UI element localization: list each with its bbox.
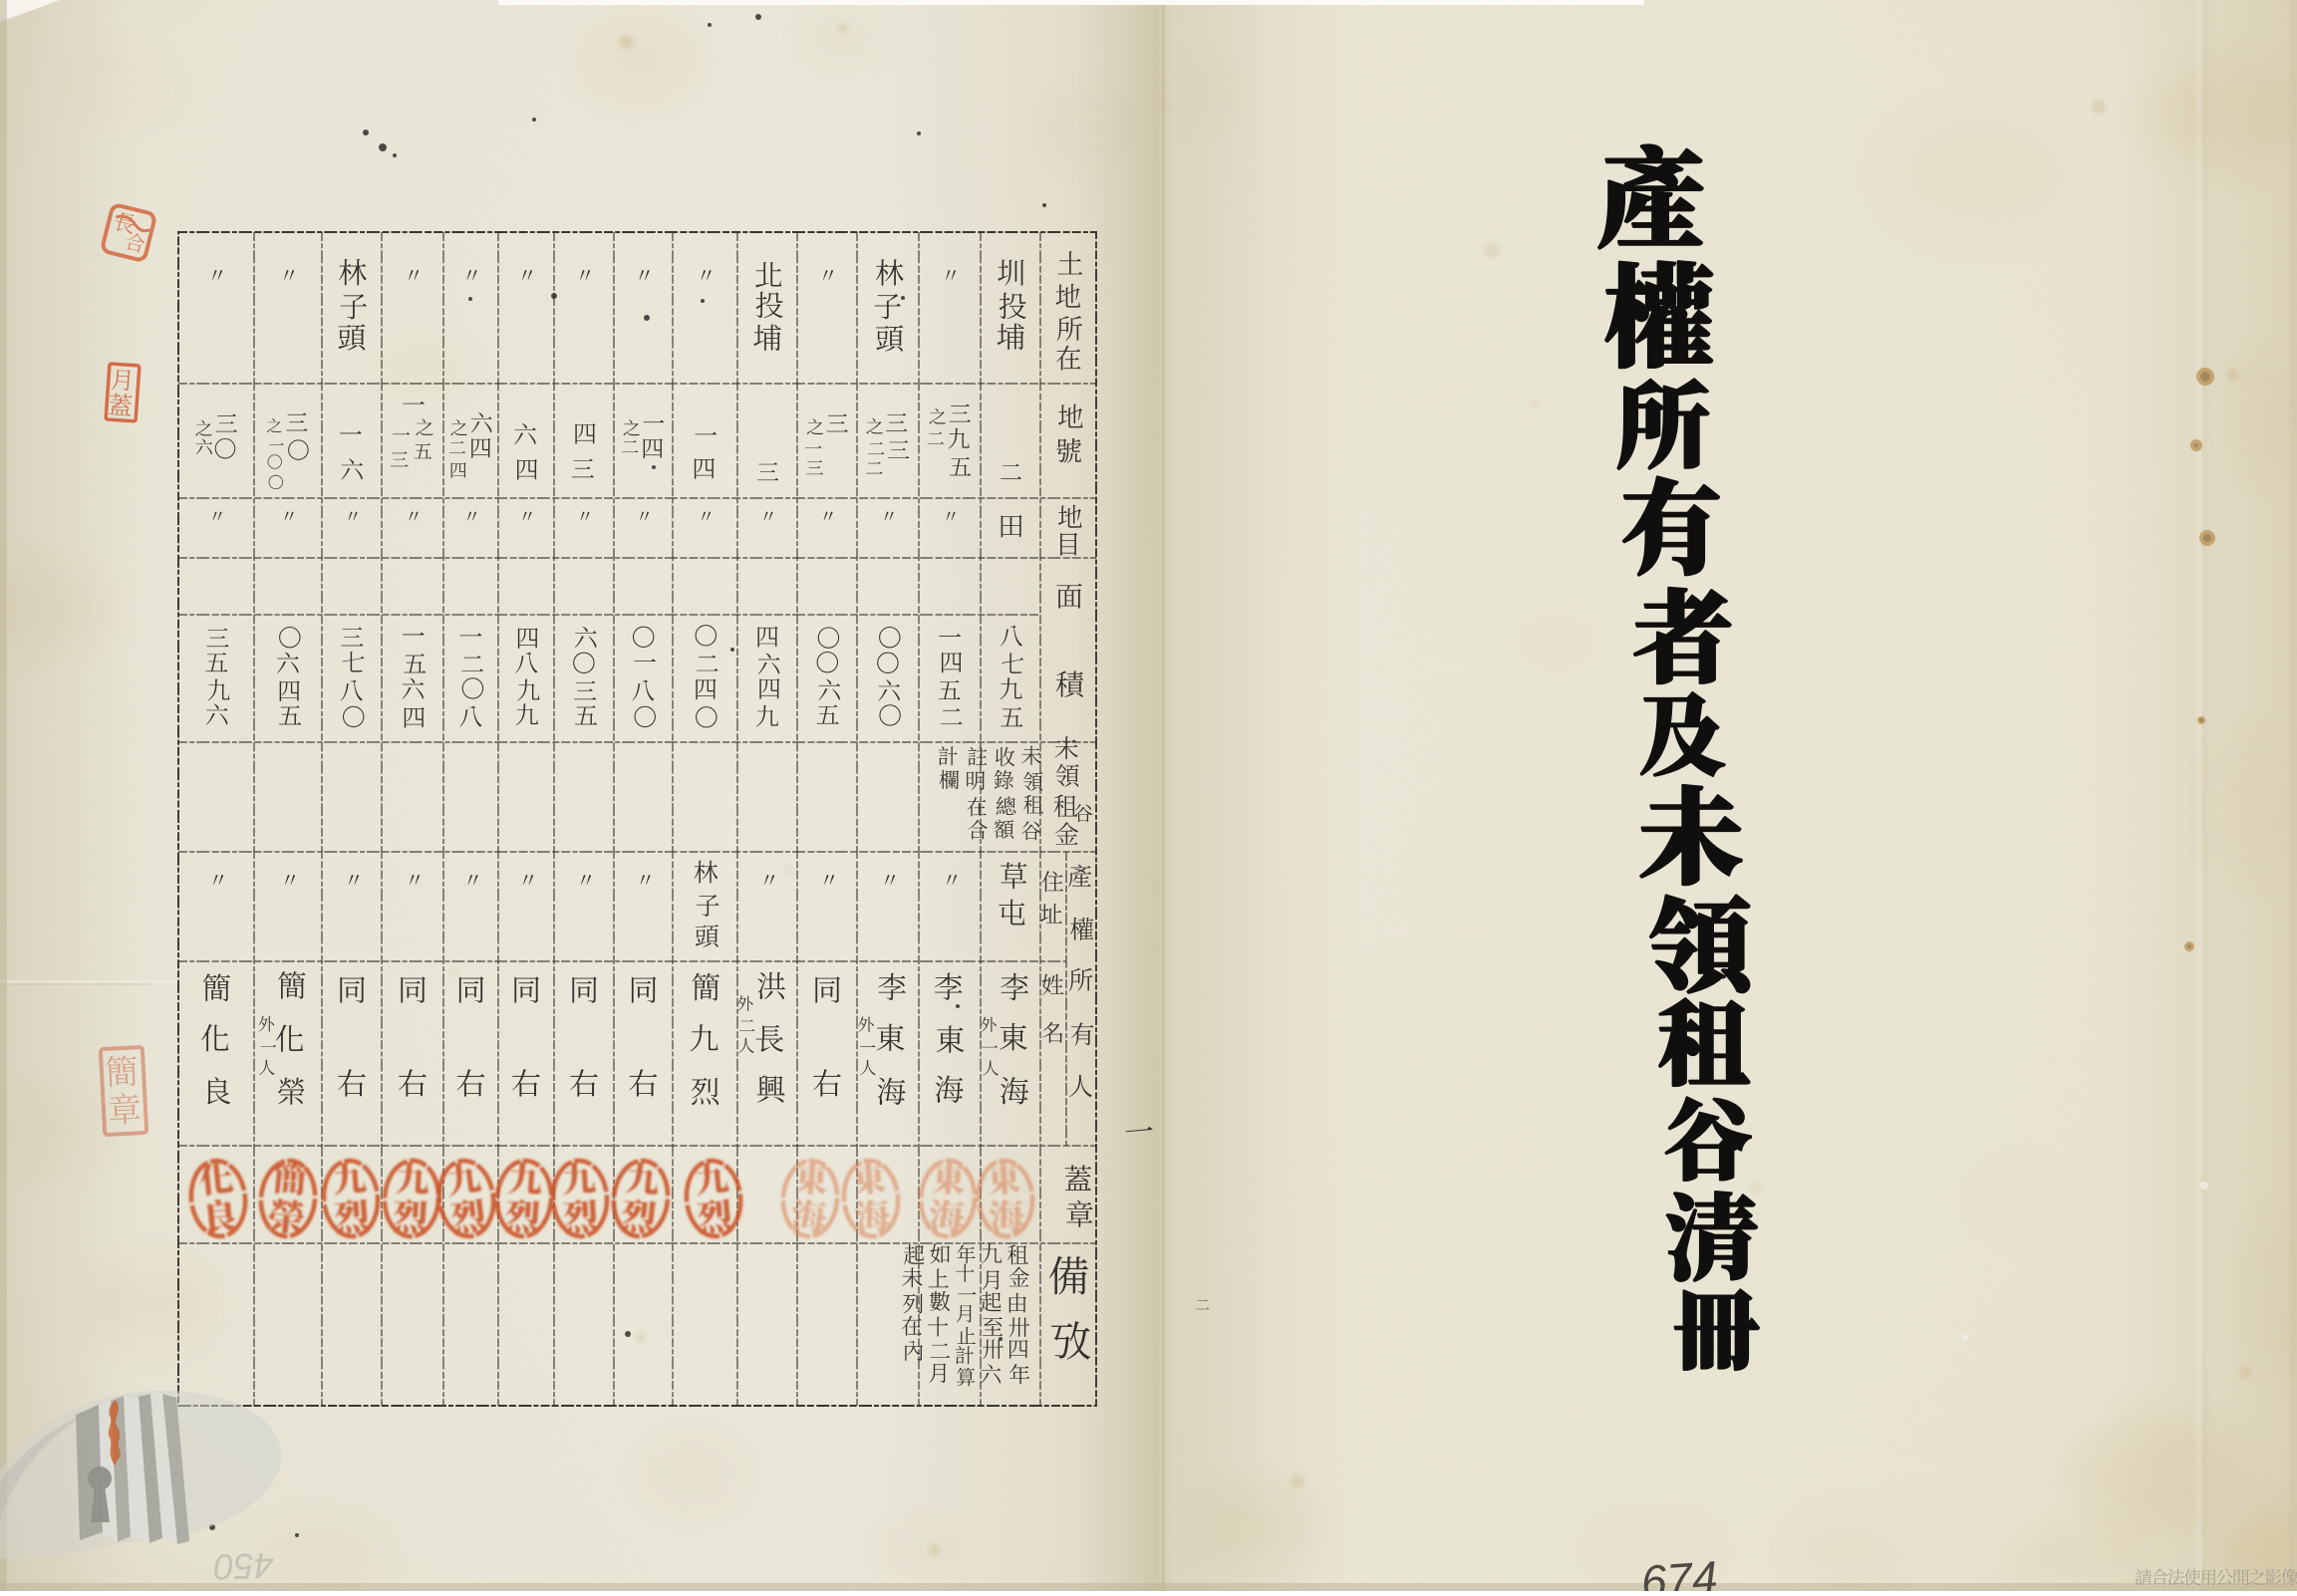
svg-text:450: 450 [213,1545,274,1588]
svg-text:674: 674 [1639,1551,1719,1591]
